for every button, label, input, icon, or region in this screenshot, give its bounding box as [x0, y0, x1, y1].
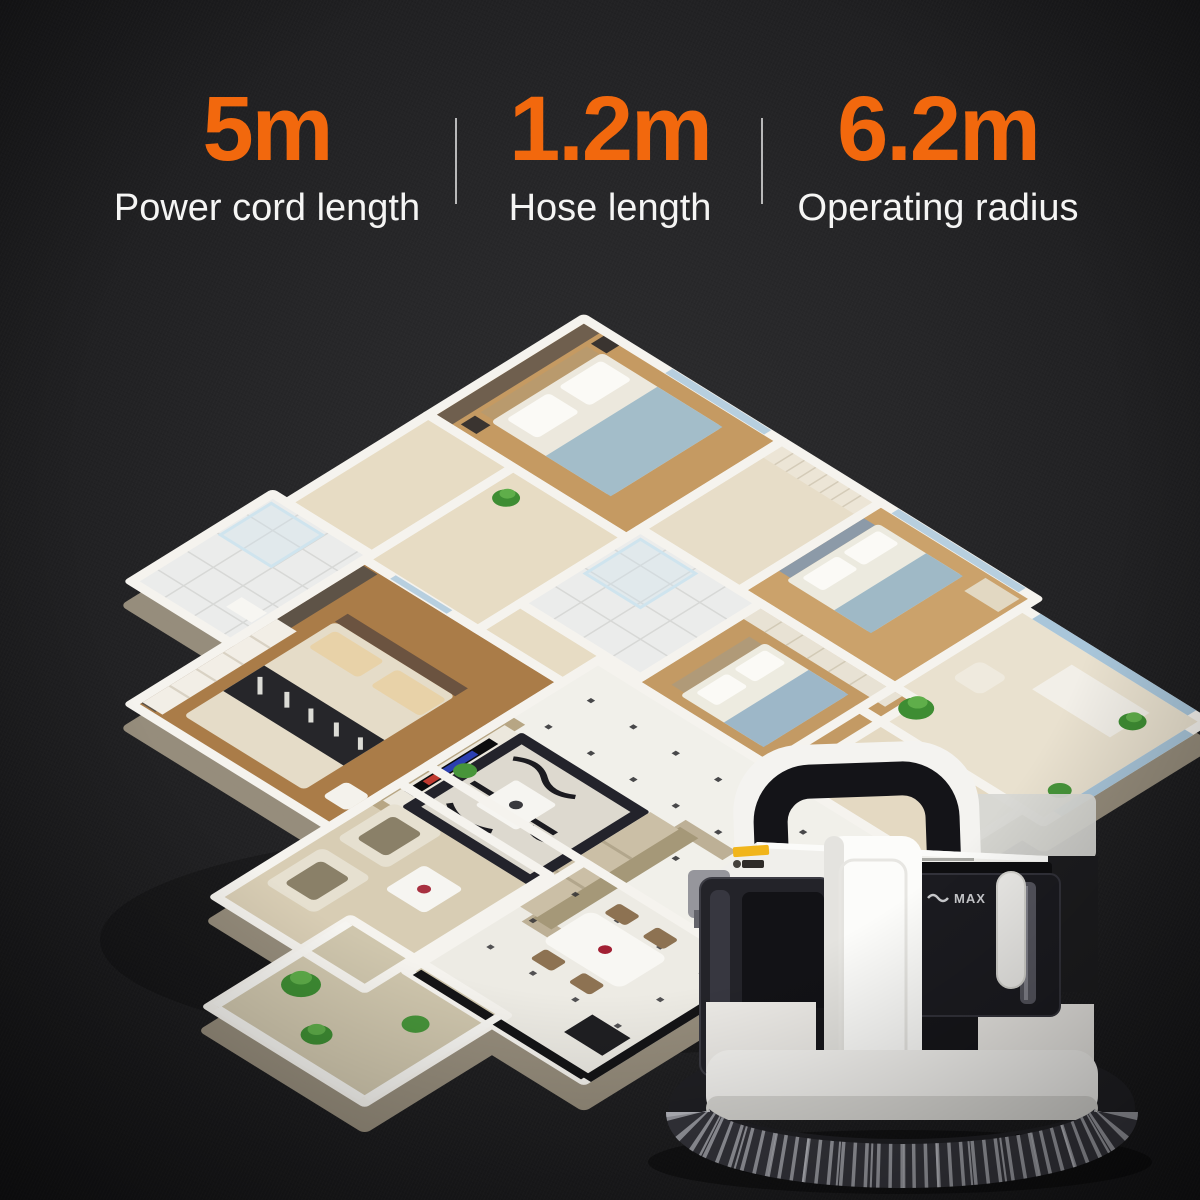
stat-label: Operating radius — [763, 188, 1113, 230]
max-fill-label: MAX — [954, 891, 986, 906]
stat-hose-length: 1.2m Hose length — [460, 86, 760, 230]
brand-mark — [742, 860, 764, 868]
stat-operating-radius: 6.2m Operating radius — [763, 86, 1113, 230]
spec-stats: 5m Power cord length 1.2m Hose length 6.… — [0, 86, 1200, 236]
stat-label: Power cord length — [52, 188, 482, 230]
stat-value: 5m — [52, 86, 482, 173]
clean-water-tank: MAX — [908, 862, 1060, 1016]
tank-latch-handle — [997, 872, 1025, 988]
stat-divider — [455, 118, 457, 204]
stat-label: Hose length — [460, 188, 760, 230]
stat-value: 1.2m — [460, 86, 760, 173]
base-plinth — [706, 1050, 1098, 1120]
stat-power-cord-length: 5m Power cord length — [52, 86, 482, 230]
stat-value: 6.2m — [763, 86, 1113, 173]
